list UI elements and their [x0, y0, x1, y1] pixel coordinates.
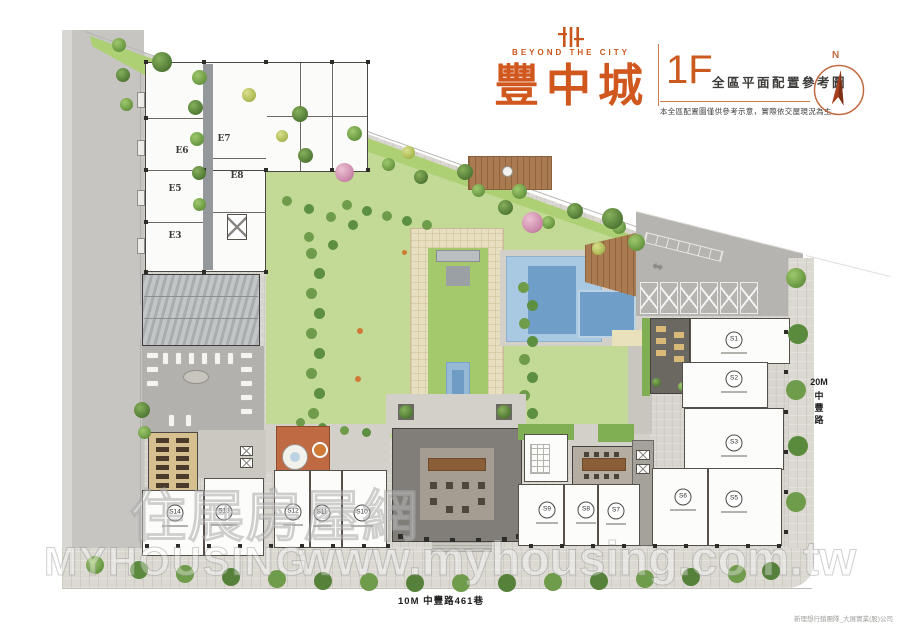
gym-equipment	[656, 326, 666, 332]
unit-note	[351, 525, 373, 527]
lobby-columns	[398, 534, 403, 539]
column-dots	[144, 60, 148, 64]
unit-label-s9: S9	[539, 502, 556, 519]
bottom-road-label: 10M 中豐路461巷	[398, 593, 484, 607]
street-trees-east	[786, 268, 806, 288]
parking-stall	[700, 282, 718, 314]
neighbor-lot-line	[806, 255, 891, 277]
tree-icon	[399, 405, 413, 419]
sw-elevator	[240, 446, 253, 456]
compass-n-label: N	[832, 50, 839, 61]
dropoff-island	[183, 370, 209, 384]
unit-note	[721, 455, 747, 457]
tree-icon	[192, 70, 207, 85]
gym-plant	[652, 378, 661, 387]
unit-note	[576, 522, 596, 524]
tree-icon	[414, 170, 428, 184]
right-road-name: 中豐路	[813, 390, 825, 426]
car-icon	[168, 414, 175, 427]
e-wall	[213, 158, 266, 159]
unit-label-s7: S7	[608, 503, 625, 520]
compass-icon	[812, 62, 866, 116]
tree-icon	[567, 203, 583, 219]
street-trees-south	[86, 556, 104, 574]
unit-note	[313, 525, 331, 527]
tree-icon	[472, 184, 485, 197]
parking-stall	[680, 282, 698, 314]
community-chairs	[584, 452, 589, 457]
unit-label-s10: S10	[354, 505, 371, 522]
tree-icon	[347, 126, 362, 141]
bottom-curb-line	[62, 588, 812, 589]
tree-icon	[498, 200, 513, 215]
canopy-ridge	[144, 318, 258, 319]
tree-icon	[602, 208, 623, 229]
unit-label-e8: E8	[230, 171, 243, 181]
tree-icon	[112, 38, 126, 52]
unit-note	[536, 522, 558, 524]
car-icon	[201, 352, 208, 365]
unit-note	[721, 511, 747, 513]
se-elevator	[636, 464, 650, 474]
car-icon	[146, 352, 159, 359]
unit-label-s2: S2	[726, 371, 743, 388]
mail-shelves	[530, 444, 550, 474]
car-icon	[227, 352, 234, 365]
canopy-ridge	[144, 296, 258, 297]
unit-label-s6: S6	[675, 489, 692, 506]
hedge-row-west	[306, 248, 317, 259]
deck-table	[502, 166, 513, 177]
car-icon	[214, 352, 221, 365]
hedge-row-north	[342, 200, 352, 210]
car-icon	[240, 366, 253, 373]
roofgarden-strip	[598, 424, 634, 442]
flowering-tree-icon	[522, 212, 543, 233]
brand-logo-icon	[558, 26, 584, 48]
unit-note	[162, 525, 188, 527]
parking-stall	[660, 282, 678, 314]
parking-stall	[720, 282, 738, 314]
header-divider-h	[660, 101, 810, 102]
shop-unit-s13	[204, 478, 264, 556]
tree-icon	[134, 402, 150, 418]
unit-label-e7: E7	[217, 134, 230, 144]
lobby-sofas	[430, 482, 437, 489]
unit-note	[211, 524, 237, 526]
car-icon	[240, 352, 253, 359]
spa-pool-water	[290, 452, 300, 462]
tree-icon	[188, 100, 203, 115]
unit-note	[721, 352, 747, 354]
lobby-steps	[432, 542, 492, 552]
unit-label-s8: S8	[578, 502, 595, 519]
e-wall	[332, 63, 333, 171]
unit-label-e6: E6	[175, 146, 188, 156]
unit-label-s1: S1	[726, 332, 743, 349]
car-icon	[185, 414, 192, 427]
tree-icon	[457, 164, 473, 180]
tree-icon	[116, 68, 130, 82]
tree-icon	[138, 426, 151, 439]
tree-icon	[292, 106, 308, 122]
tree-icon	[542, 216, 555, 229]
building-e-corridor	[203, 64, 213, 270]
tree-icon	[193, 198, 206, 211]
shop-unit-s14	[142, 490, 204, 556]
unit-label-s11: S11	[314, 505, 331, 522]
floor-label: 1F	[666, 48, 713, 92]
parking-stall	[740, 282, 758, 314]
e-wall	[213, 212, 266, 213]
unit-label-s3: S3	[726, 435, 743, 452]
e-wall	[267, 116, 367, 117]
sw-elevator	[240, 458, 253, 468]
left-road-curb	[62, 30, 72, 560]
community-table	[582, 458, 626, 471]
hedge-row-mid	[282, 196, 292, 206]
accent-plant-icon	[402, 250, 407, 255]
arcade-columns-south	[145, 544, 149, 548]
hedge-row-east	[518, 282, 529, 293]
tree-icon	[512, 184, 527, 199]
shop-unit-s6	[652, 468, 708, 546]
driveway-branch	[84, 300, 146, 344]
tree-icon	[190, 132, 204, 146]
car-icon	[240, 394, 253, 401]
e-wall	[146, 118, 203, 119]
tree-icon	[298, 148, 313, 163]
unit-note	[670, 509, 696, 511]
parking-stall	[640, 282, 658, 314]
car-icon	[162, 352, 169, 365]
balcony	[137, 140, 145, 156]
header-divider-v	[658, 44, 659, 106]
accent-plant-icon	[357, 328, 363, 334]
right-road-label: 20M 中豐路	[806, 376, 832, 426]
tree-icon	[276, 130, 288, 142]
se-elevator	[636, 450, 650, 460]
credit-text: 新理想行銷團隊_大展實業(股)公司	[794, 613, 893, 623]
building-e-elevator	[227, 214, 247, 240]
accent-plant-icon	[355, 376, 361, 382]
lobby-console-table	[428, 458, 486, 471]
sw-corridor	[198, 430, 266, 478]
project-title: 豐中城	[486, 60, 658, 112]
pavilion-core	[446, 266, 470, 286]
car-icon	[240, 380, 253, 387]
car-icon	[146, 366, 159, 373]
balcony	[137, 92, 145, 108]
tree-icon	[192, 166, 206, 180]
shop-unit-s5	[708, 468, 782, 546]
balcony	[137, 190, 145, 206]
gym-green-strip	[642, 318, 650, 396]
car-icon	[146, 380, 159, 387]
unit-label-s14: S14	[167, 505, 184, 522]
tree-icon	[402, 146, 415, 159]
meeting-tables	[156, 438, 169, 443]
water-feature-inner	[452, 370, 464, 396]
tree-icon	[497, 405, 511, 419]
car-icon	[188, 352, 195, 365]
left-road	[62, 30, 144, 560]
pool-main	[528, 266, 576, 334]
unit-note	[283, 524, 303, 526]
unit-label-e5: E5	[168, 184, 181, 194]
pavilion-roof	[436, 250, 480, 262]
unit-note	[606, 523, 626, 525]
brand-tagline: BEYOND THE CITY	[488, 48, 654, 57]
tree-icon	[152, 52, 172, 72]
car-icon	[240, 408, 253, 415]
car-icon	[175, 352, 182, 365]
shop-unit-s2	[682, 362, 768, 408]
unit-label-e3: E3	[168, 231, 181, 241]
unit-label-s5: S5	[726, 491, 743, 508]
spa-table	[312, 442, 328, 458]
arcade-columns-east	[784, 330, 788, 334]
tree-icon	[120, 98, 133, 111]
unit-label-s13: S13	[216, 504, 233, 521]
flowering-tree-icon	[335, 163, 354, 182]
e-wall	[146, 222, 203, 223]
tree-icon	[592, 242, 605, 255]
right-road-width: 20M	[810, 377, 828, 387]
ramp-canopy	[142, 274, 260, 346]
unit-note	[721, 391, 747, 393]
tree-icon	[242, 88, 256, 102]
site-plan-page: ⬌	[0, 0, 900, 636]
tree-icon	[628, 234, 645, 251]
balcony	[137, 238, 145, 254]
tree-icon	[382, 158, 395, 171]
unit-label-s12: S12	[285, 504, 302, 521]
